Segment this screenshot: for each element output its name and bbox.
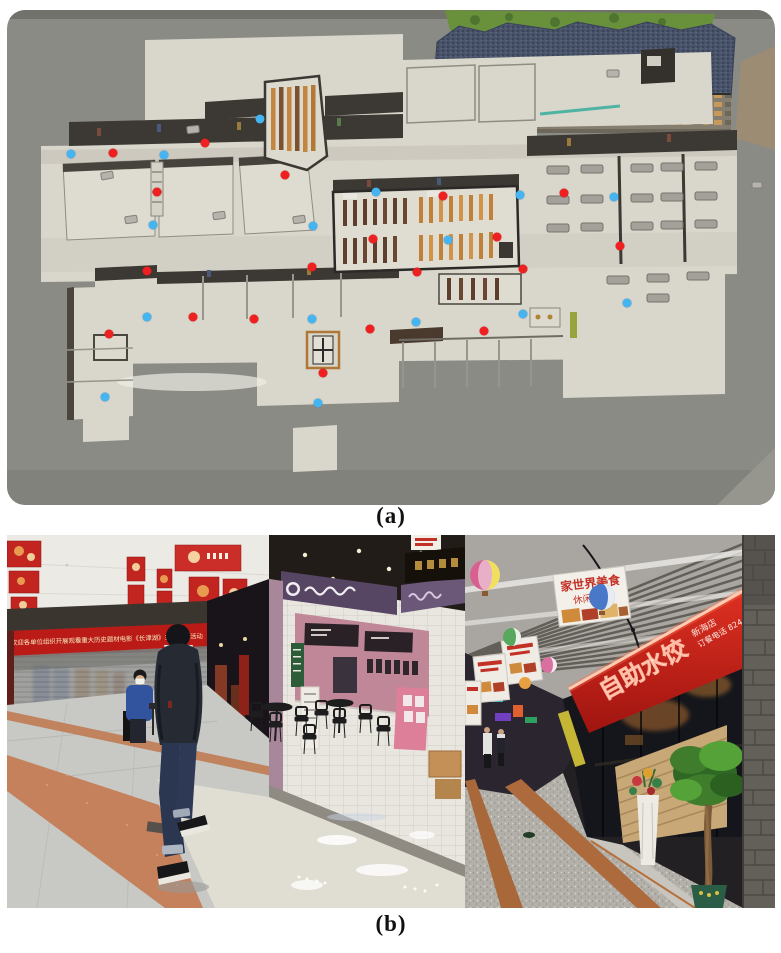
- floor-plan-panel: [7, 10, 775, 505]
- stone-pillar: [743, 535, 775, 908]
- sample-point-blue: [412, 318, 421, 327]
- balloon: [519, 677, 531, 689]
- sample-point-red: [105, 330, 114, 339]
- cardboard-box: [429, 751, 461, 777]
- sample-point-blue: [444, 236, 453, 245]
- sample-point-red: [201, 139, 210, 148]
- sample-point-red: [250, 315, 259, 324]
- sample-point-red: [109, 149, 118, 158]
- white-tag: [411, 535, 441, 550]
- photo-row: 欢迎各单位组织开展观看重大历史题材电影《长津湖》主题党日活动: [7, 535, 775, 908]
- paper-figure: (a): [0, 0, 781, 953]
- sample-point-blue: [309, 222, 318, 231]
- sample-point-blue: [519, 310, 528, 319]
- sample-point-red: [308, 263, 317, 272]
- sample-point-blue: [623, 299, 632, 308]
- sample-point-red: [281, 171, 290, 180]
- sample-point-red: [480, 327, 489, 336]
- sample-point-red: [319, 369, 328, 378]
- balloon: [541, 657, 557, 673]
- caption-b: (b): [7, 911, 775, 937]
- hanging-sign-small: [465, 681, 481, 725]
- cardboard-box-2: [435, 779, 461, 799]
- drink-machine: [333, 657, 357, 693]
- sample-point-red: [369, 235, 378, 244]
- sample-point-blue: [143, 313, 152, 322]
- sample-point-blue: [372, 188, 381, 197]
- sample-point-red: [189, 313, 198, 322]
- balloon: [503, 628, 521, 646]
- sample-point-blue: [314, 399, 323, 408]
- sample-point-red: [439, 192, 448, 201]
- sample-point-blue: [308, 315, 317, 324]
- sample-point-red: [153, 188, 162, 197]
- sample-point-red: [616, 242, 625, 251]
- photo-left-mall-interior: 欢迎各单位组织开展观看重大历史题材电影《长津湖》主题党日活动: [7, 535, 465, 908]
- sample-point-red: [493, 233, 502, 242]
- sample-point-red: [413, 268, 422, 277]
- sample-point-red: [366, 325, 375, 334]
- floor-object: [523, 832, 535, 838]
- sample-point-blue: [67, 149, 76, 158]
- sample-point-blue: [149, 221, 158, 230]
- sample-point-red: [560, 189, 569, 198]
- sample-point-blue: [160, 151, 169, 160]
- photo-right-mall-corridor: 自助水饺 新海店 订餐电话 8244499992 家世界美食 休闲广场: [465, 535, 775, 908]
- sample-point-blue: [256, 115, 265, 124]
- caption-a: (a): [7, 503, 775, 529]
- sample-point-blue: [516, 191, 525, 200]
- sample-point-blue: [610, 193, 619, 202]
- sample-point-red: [519, 265, 528, 274]
- sample-point-blue: [101, 393, 110, 402]
- face-mask: [136, 679, 145, 685]
- sample-point-red: [143, 267, 152, 276]
- sample-points-layer: [7, 10, 775, 505]
